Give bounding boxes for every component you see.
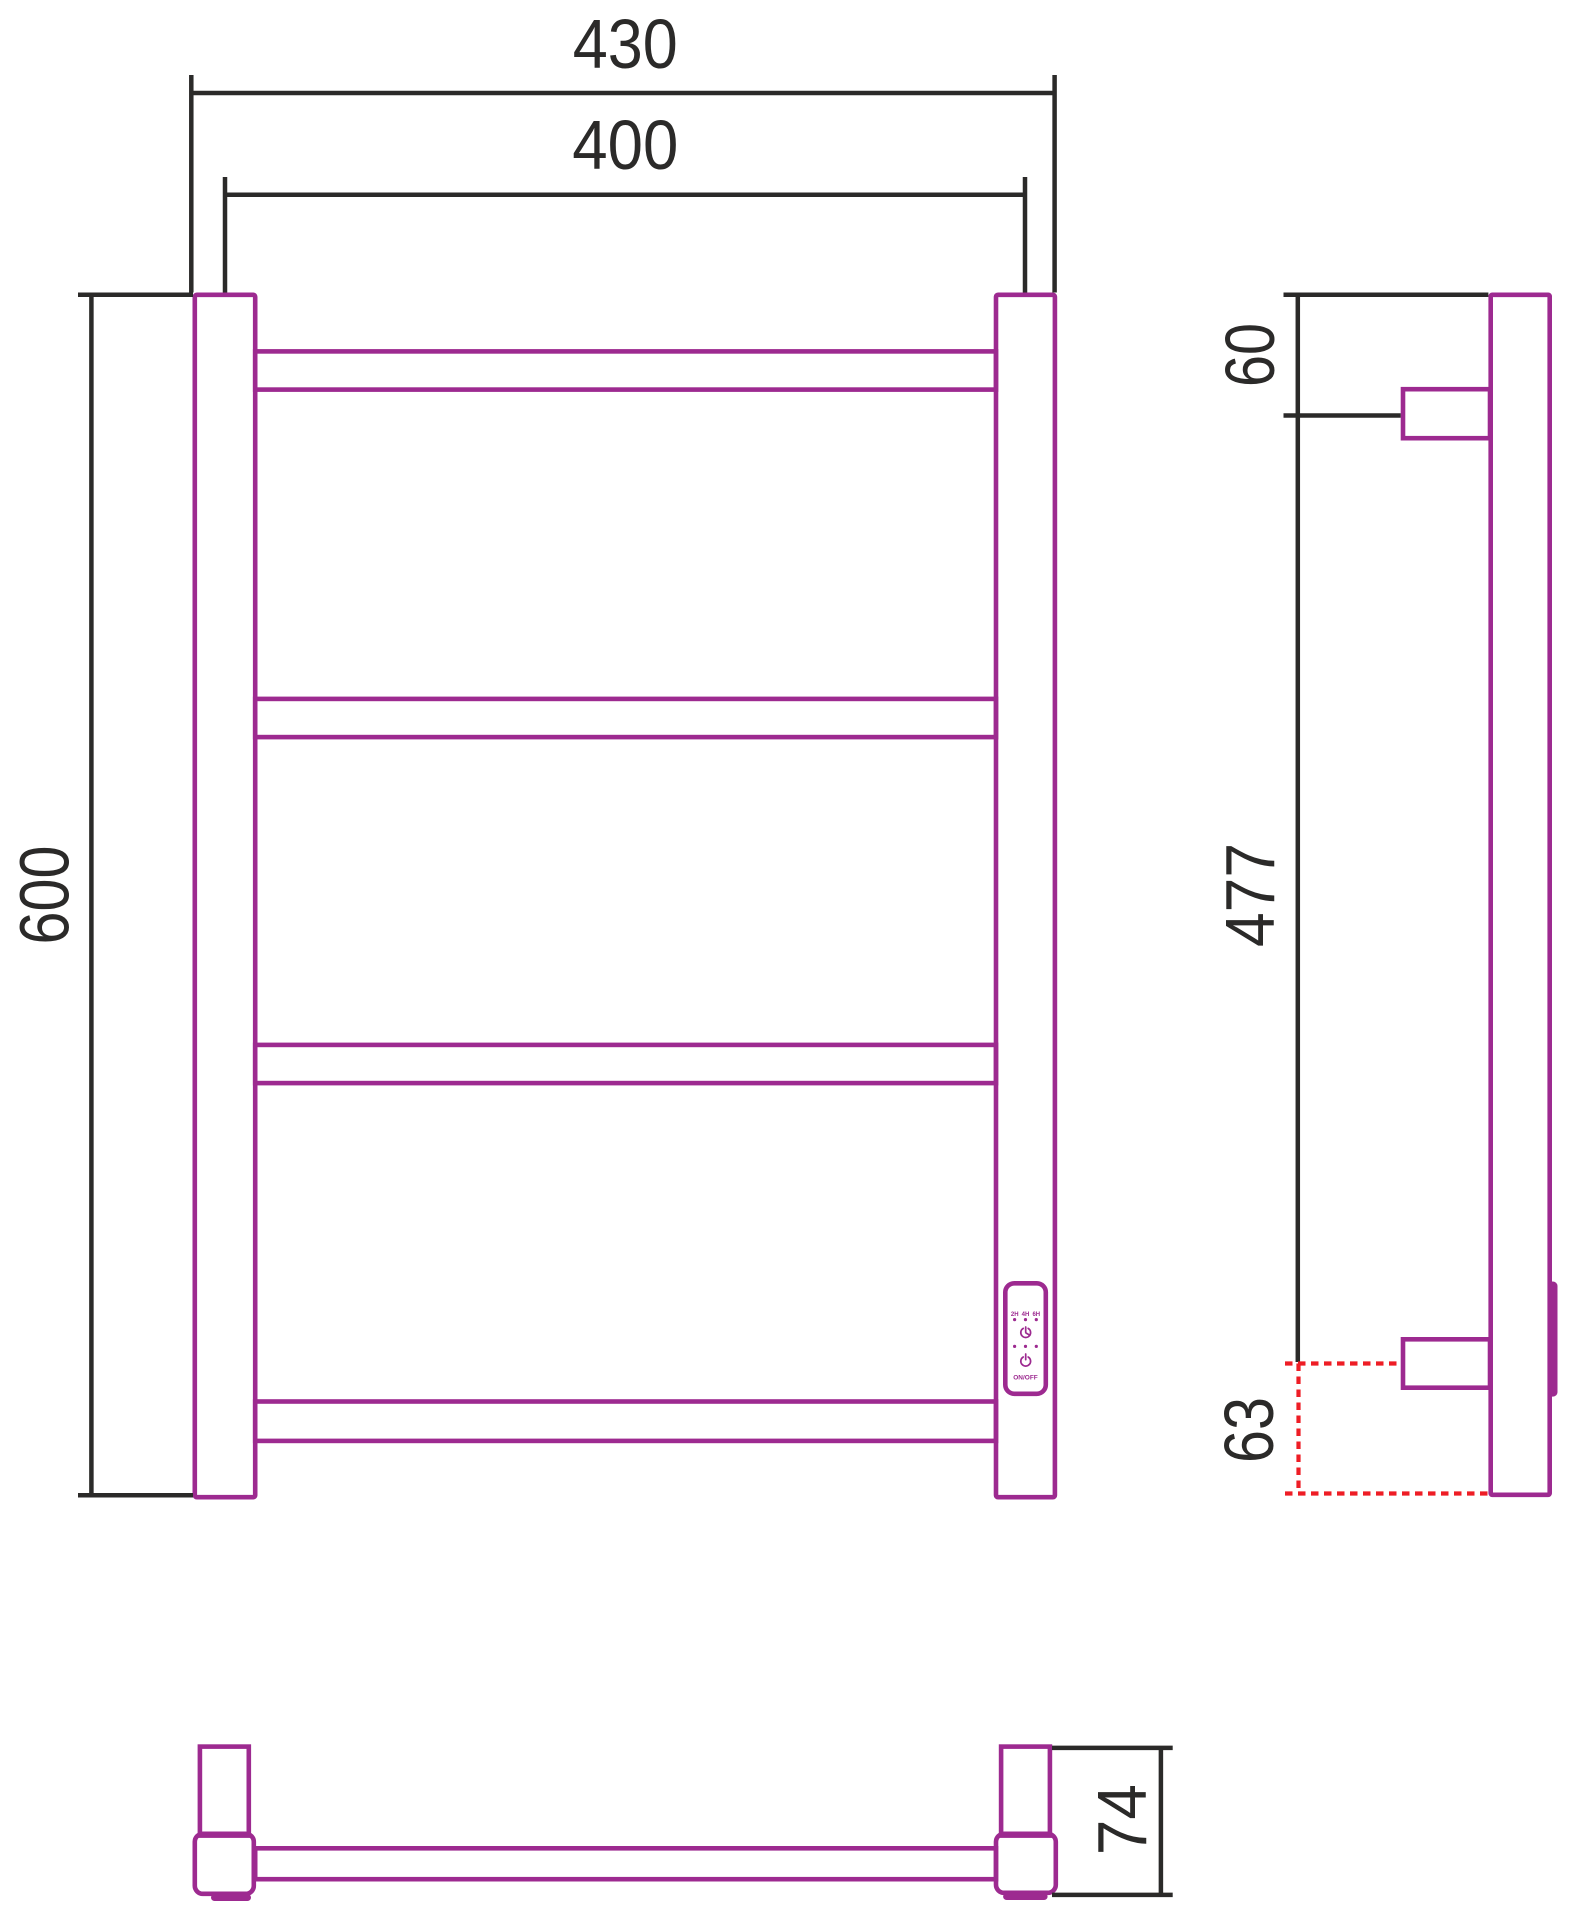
svg-text:400: 400 xyxy=(572,106,678,184)
svg-text:477: 477 xyxy=(1211,843,1289,947)
svg-text:60: 60 xyxy=(1211,323,1289,387)
svg-text:4H: 4H xyxy=(1022,1312,1030,1318)
svg-text:6H: 6H xyxy=(1032,1312,1040,1318)
svg-text:430: 430 xyxy=(573,5,678,83)
svg-text:2H: 2H xyxy=(1011,1312,1019,1318)
svg-text:600: 600 xyxy=(6,846,84,945)
svg-text:ON/OFF: ON/OFF xyxy=(1013,1375,1038,1382)
svg-text:74: 74 xyxy=(1083,1784,1161,1855)
svg-text:63: 63 xyxy=(1210,1397,1288,1463)
